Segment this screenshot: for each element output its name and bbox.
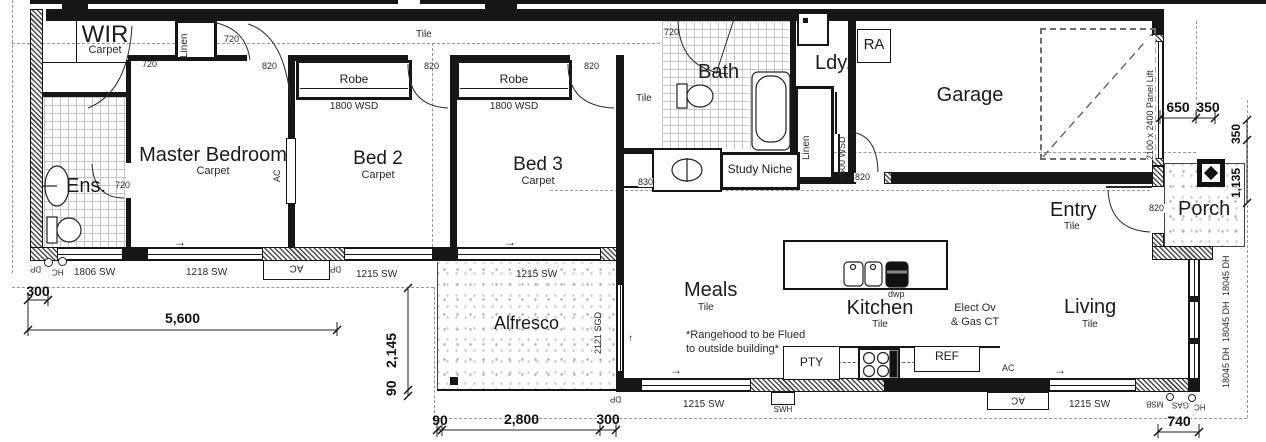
finish-label: Tile [840,320,920,331]
ac-label: AC [1002,364,1015,373]
door-size-label: 820 [584,62,599,71]
wall-segment [885,378,1050,392]
door-swing-arc [1108,190,1150,232]
section-line-d [432,43,433,247]
linen-label: Linen [802,110,813,160]
wir-shelf-line [43,62,127,63]
pantry-label: PTY [783,356,840,369]
window-18045-dh [1188,344,1200,378]
room-label-master: Master Bedroom [138,145,288,166]
sliding-door-2121-sgd [616,285,624,371]
wall-segment [1188,378,1200,392]
door-size-label: 720 [115,181,130,190]
finish-label: Tile [698,303,714,314]
room-label-alfresco: Alfresco [494,314,559,333]
wall-segment [432,247,458,261]
section-line-c [550,190,1150,191]
finish-label: Carpet [78,45,132,57]
dim-label: 2,145 [384,310,399,368]
ra-label: RA [858,37,890,53]
porch-post [1197,159,1225,187]
finish-label-hall: Tile [416,30,432,41]
dim-label: 2,800 [494,412,549,427]
room-label-bath: Bath [698,62,739,83]
window-1218-sw [148,247,262,261]
ac-label: AC [273,158,282,182]
door-size-label: 820 [424,62,439,71]
slide-arrow: → [174,236,186,249]
linen-cabinet-laundry [795,86,834,180]
room-label-laundry: Ldy. [815,53,851,74]
door-size-label: 820 [854,173,871,182]
dim-label: 350 [1190,100,1226,115]
swh-label: SWH [765,406,801,414]
dim-label: 300 [20,284,56,299]
slide-arrow: → [670,364,682,377]
robe-door-label: 1800 WSD [478,102,550,113]
wall-bath-south [622,148,652,154]
window-label: 1218 SW [186,268,227,279]
wall-wir-south [42,92,131,97]
linen-door-label: 720 [224,35,239,44]
door-size-label: 720 [664,28,679,37]
door-size-label: 820 [1148,204,1165,213]
window-1215-sw [345,247,432,261]
sliding-door-leaf [835,92,837,134]
wir-shelf-line [76,21,77,62]
hosecock-symbol [58,257,67,266]
appliance-note: & Gas CT [938,317,1012,329]
rangehood-note: to outside building* [686,344,779,356]
robe-shelf-line [300,88,408,89]
setback-line-front-east [434,418,1247,419]
wall-segment [420,0,1266,4]
finish-label: Tile [1082,320,1098,331]
window-label: 18045 DH [1222,256,1231,296]
ac-label: AC [987,394,1049,405]
slide-arrow: ↑ [628,334,633,345]
wall-spine [616,371,624,392]
dishwasher-label: dwp [888,290,905,299]
vanity-bath [652,148,722,192]
window-1215-sw [1050,378,1135,392]
swh-unit [771,392,795,405]
floor-plan: WIR Carpet Ens. Master Bedroom Carpet Be… [0,0,1266,442]
window-label: 18045 DH [1222,302,1231,342]
window-label: 1215 SW [683,400,724,411]
dp-label: DP [610,394,621,402]
rangehood-note: *Rangehood to be Flued [686,330,805,342]
setback-line-front-west [12,287,434,288]
ac-label: AC [263,262,330,273]
slide-arrow: → [504,236,516,249]
room-label-meals: Meals [684,280,737,301]
room-label-kitchen: Kitchen [840,298,920,319]
kitchen-island [783,240,948,290]
wall-wir-east [126,60,131,96]
wall-segment [485,0,517,9]
robe-shelf-line [460,88,568,89]
window-label: 18045 DH [1222,348,1231,388]
finish-label: Tile [636,94,652,105]
door-size-label-panel-lift: 2100 x 2400 Panel Lift [1146,36,1155,160]
wall-porch-south [1152,246,1213,260]
cooktop [858,348,900,380]
finish-label: Carpet [345,170,411,182]
dim-label: 90 [424,413,456,428]
slide-arrow: → [1054,364,1066,377]
door-jamb [1152,166,1164,187]
room-label-bed3: Bed 3 [505,155,571,175]
fridge-label: REF [914,350,980,363]
appliance-note: Elect Ov [938,303,1012,315]
hosecock-symbol [1188,394,1196,402]
wall-laundry-east [848,9,856,184]
dim-label: 90 [384,370,399,396]
study-niche-label: Study Niche [722,163,798,176]
room-label-entry: Entry [1050,200,1097,221]
wall-left [30,9,43,256]
door-size-label: 720 [142,60,157,69]
hc-label: HC [52,267,64,275]
room-label-ens: Ens. [66,176,106,197]
wall-ens-east [126,198,131,256]
downpipe-symbol [44,258,53,267]
laundry-tub [797,12,829,46]
wall-garage-south [892,172,1152,184]
room-label-living: Living [1064,297,1116,318]
alfresco-left-edge [437,262,438,390]
msb-label: MSB [1146,399,1163,407]
robe-label: Robe [486,73,542,86]
room-label-porch: Porch [1178,199,1230,220]
linen-label: Linen [180,24,191,58]
finish-label: Carpet [505,176,571,188]
wall-spine [616,55,624,285]
door-jamb [884,172,892,184]
opening-size-label: 830 [638,178,653,187]
wall-ens-east [126,97,131,163]
window-1215-sw [642,378,750,392]
dim-label: 300 [590,412,626,427]
window-1215-sw-alfresco [458,247,600,261]
alfresco-post [450,377,458,385]
door-jamb [1152,233,1164,247]
robe-door-label: 1800 WSD [318,102,390,113]
finish-label: Tile [1064,222,1080,233]
laundry-tub-plug [803,18,808,23]
robe-label: Robe [326,73,382,86]
window-1806-sw [58,247,122,261]
wall-segment [262,247,345,261]
boundary-line-left [12,0,13,273]
window-label: 1806 SW [74,268,115,279]
gas-label: GAS [1172,400,1189,408]
door-size-label: 820 [262,62,277,71]
room-label-garage: Garage [930,85,1010,106]
wall-segment [750,378,885,392]
door-size-label-sgd: 2121 SGD [594,292,603,354]
window-18045-dh [1188,302,1200,338]
dim-label: 5,600 [145,311,220,326]
dim-label: 350 [1230,118,1243,144]
room-label-bed2: Bed 2 [345,149,411,169]
dim-label: 740 [1160,414,1198,429]
dp-label: DP [30,264,41,272]
window-18045-dh [1188,260,1200,296]
setback-line-right [1247,100,1248,418]
garage-door-zone [1040,28,1156,160]
wall-segment [624,378,642,392]
window-label: 1215 SW [356,270,397,281]
porch-post-core [1204,166,1218,180]
setback-line-alfresco [434,287,435,418]
alfresco-front-edge [437,389,618,391]
window-label: 1215 SW [516,270,557,281]
bath-tiled-floor [662,21,790,149]
dim-label: 1,135 [1230,150,1243,198]
finish-label: Carpet [138,166,288,178]
dp-label: DP [330,264,341,272]
hc-label: HC [1194,402,1206,410]
window-label: 1215 SW [1069,400,1110,411]
linen-door-label: 1500 WSD [838,112,847,180]
